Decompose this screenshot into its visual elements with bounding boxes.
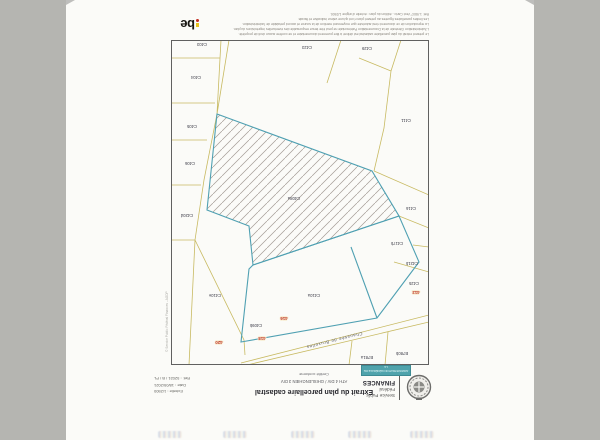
document-rotated-180: Service Public Fédéral FINANCES ADMINIST… — [66, 0, 534, 440]
header-divider — [399, 373, 400, 400]
federal-emblem-icon — [404, 372, 434, 402]
parcel-label: C429 — [361, 46, 372, 51]
parcel-label: C416 — [405, 206, 416, 211]
parcel-label: C403 — [196, 42, 207, 47]
scanned-page: Service Public Fédéral FINANCES ADMINIST… — [66, 0, 534, 440]
house-number: 420 — [215, 340, 223, 345]
cadastral-map: C403 C404 C405 C406 C420d C410e C409b C4… — [171, 40, 429, 365]
be-logo: be — [171, 13, 195, 33]
house-number: 412 — [412, 290, 420, 295]
parcel-label: C411 — [400, 118, 410, 123]
hatched-subject-parcel — [207, 114, 399, 265]
parcel-label: C425 — [408, 281, 419, 286]
street-name-label: Chaussée de Bruxelles — [306, 331, 363, 350]
parcel-label: C410e — [208, 293, 221, 298]
parcel-label: C404 — [190, 75, 201, 80]
parcel-label: C405 — [186, 124, 197, 129]
house-number: 416 — [280, 316, 288, 321]
info-scale: Echelle : 1/2500 — [154, 388, 244, 394]
info-date: Date : 18/05/2021 — [154, 381, 244, 387]
legal-disclaimer: Le présent extrait du plan parcellaire c… — [201, 11, 429, 36]
parcel-label: C417b — [390, 241, 403, 246]
house-number: 418 — [258, 336, 266, 341]
info-ref: Réf. : 52021 / B / PL — [154, 375, 244, 381]
parcel-label: C409b — [249, 323, 262, 328]
parcel-label-hatched: C408a — [287, 196, 300, 201]
parcel-label: C421b — [405, 261, 418, 266]
be-logo-dot-icon — [196, 19, 199, 22]
parcel-label: C420d — [180, 213, 193, 218]
be-logo-yellow-mark — [196, 23, 199, 27]
parcel-label: C410a — [307, 293, 320, 298]
disclaimer-line: Le présent extrait du plan parcellaire c… — [201, 31, 429, 36]
certified-line: Certifié conforme — [234, 372, 394, 377]
cadastral-division: ATH 4 DIV / GHISLENGHIEN 3 DIV — [234, 379, 394, 384]
disclaimer-line: L'Administration Générale de la Document… — [201, 26, 429, 31]
disclaimer-line: Les limites parcellaires figurées au pré… — [201, 16, 429, 21]
parcel-label: B781a — [360, 355, 373, 360]
parcel-label: B780b — [395, 351, 408, 356]
document-title: Extrait du plan parcellaire cadastral — [234, 388, 394, 395]
map-side-note: © Service Public Fédéral Finances - AGDP — [165, 292, 169, 352]
parcel-label: C423 — [301, 45, 312, 50]
be-logo-text: be — [181, 17, 195, 32]
extract-info: Echelle : 1/2500 Date : 18/05/2021 Réf. … — [154, 375, 244, 394]
scanned-cadastral-extract: { "window": { "background": "#b5b5b1", "… — [0, 0, 600, 440]
parcel-label: C406 — [184, 161, 195, 166]
